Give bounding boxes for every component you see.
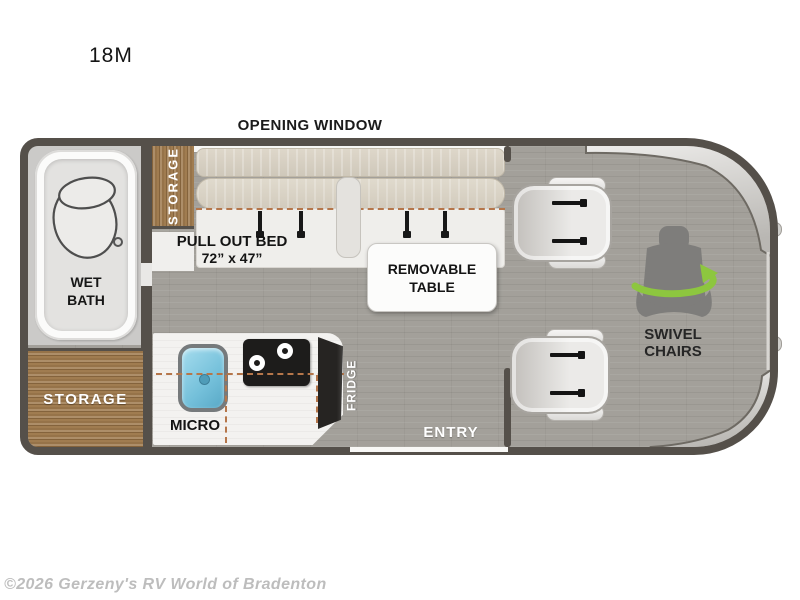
shower-tub: WET BATH: [35, 150, 137, 340]
storage-top-label: STORAGE: [152, 146, 194, 226]
cooktop-icon: [243, 339, 310, 386]
entry-label: ENTRY: [411, 424, 491, 441]
drain-icon: [113, 237, 123, 247]
seat-belt-strap: [443, 211, 447, 237]
removable-table: REMOVABLE TABLE: [367, 243, 497, 312]
chair-seat: [512, 184, 612, 262]
floorplan-canvas: 18M OPENING WINDOW: [0, 0, 800, 600]
opening-window-label: OPENING WINDOW: [180, 117, 440, 134]
seat-belt-strap: [552, 239, 585, 243]
wet-bath-label: WET BATH: [44, 273, 128, 309]
burner-icon: [277, 343, 293, 359]
bed-middle-cushion: [336, 177, 361, 258]
storage-cabinet-top: STORAGE: [152, 146, 194, 229]
swivel-chair-top: [512, 177, 624, 269]
swivel-chairs-label: SWIVEL CHAIRS: [628, 326, 718, 360]
entry-door-opening: [350, 447, 508, 452]
fridge-label: FRIDGE: [344, 342, 359, 428]
seat-belt-strap: [552, 201, 585, 205]
shower-pan: WET BATH: [44, 159, 128, 331]
storage-cabinet-bottom: STORAGE: [28, 348, 143, 447]
chair-seat: [510, 336, 610, 414]
toilet-icon: [44, 163, 128, 267]
fridge-icon: [318, 337, 343, 429]
swivel-seat-icon: [630, 224, 718, 328]
sink-icon: [178, 344, 228, 412]
seat-belt-strap: [405, 211, 409, 237]
cab-bulkhead-wall: [504, 146, 511, 162]
pull-out-bed-label: PULL OUT BED 72” x 47”: [162, 234, 302, 267]
wet-bath-region: WET BATH: [28, 146, 143, 345]
storage-bottom-label: STORAGE: [43, 391, 127, 408]
swivel-chair-bottom: [510, 329, 622, 421]
seat-belt-strap: [550, 353, 583, 357]
dealer-watermark: ©2026 Gerzeny's RV World of Bradenton: [4, 576, 327, 594]
van-body-outline: WET BATH STORAGE STORAGE PULL OUT B: [20, 138, 778, 455]
seat-belt-strap: [550, 391, 583, 395]
burner-icon: [249, 355, 265, 371]
micro-label: MICRO: [155, 417, 235, 434]
model-title: 18M: [89, 44, 133, 68]
bed-back-cushion: [196, 148, 505, 177]
counter-dashed-line: [316, 375, 318, 423]
bath-doorway: [141, 263, 152, 286]
